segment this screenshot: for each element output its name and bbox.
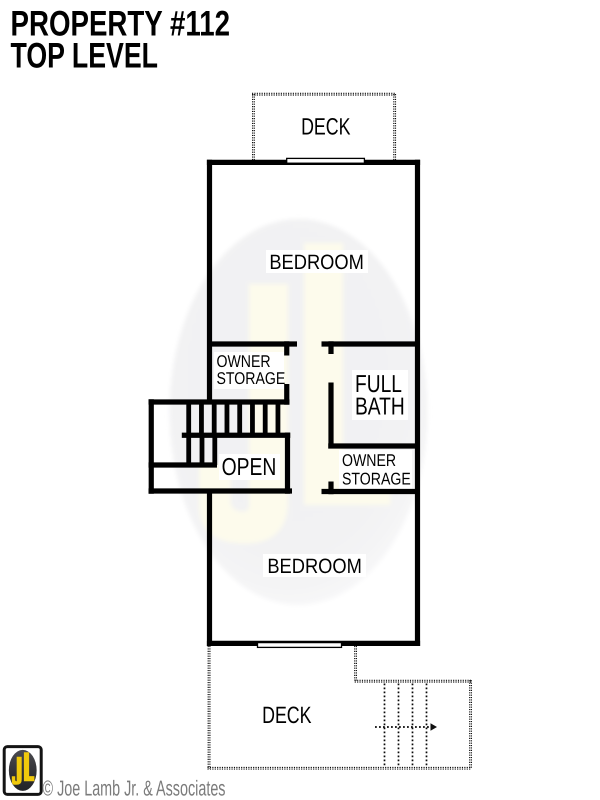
svg-text:DECK: DECK [262, 703, 312, 729]
svg-text:STORAGE: STORAGE [342, 470, 411, 489]
svg-text:OWNER: OWNER [342, 451, 396, 470]
svg-text:OPEN: OPEN [222, 454, 277, 481]
svg-text:TOP LEVEL: TOP LEVEL [11, 35, 159, 75]
svg-text:BEDROOM: BEDROOM [267, 555, 362, 578]
svg-text:DECK: DECK [301, 115, 351, 141]
svg-text:BEDROOM: BEDROOM [269, 251, 364, 274]
svg-text:STORAGE: STORAGE [217, 369, 286, 388]
svg-text:BATH: BATH [355, 393, 405, 420]
svg-text:© Joe Lamb Jr. & Associates: © Joe Lamb Jr. & Associates [43, 775, 226, 800]
